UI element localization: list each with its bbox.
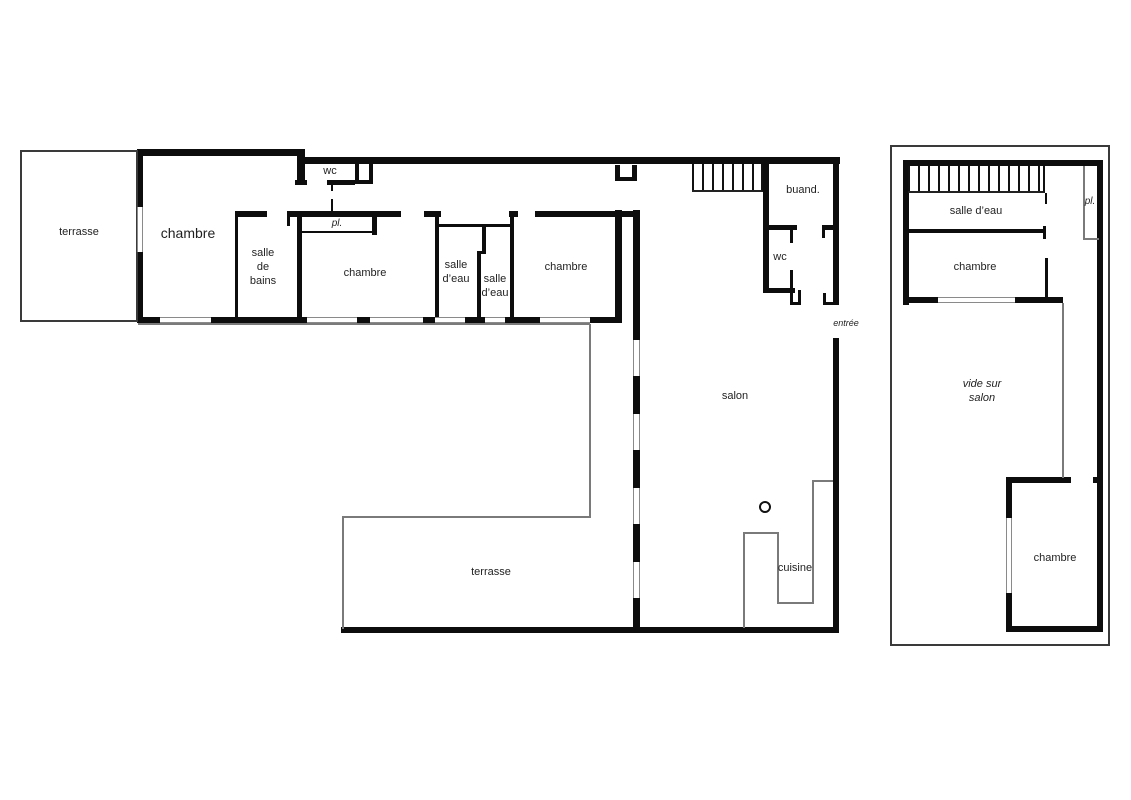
- label-buanderie: buand.: [786, 183, 820, 197]
- window-wing-south-2: [307, 317, 357, 323]
- label-salle-d-eau-etage: salle d’eau: [950, 204, 1003, 218]
- label-cuisine: cuisine: [778, 561, 812, 575]
- sdb-top-wall: [235, 211, 267, 217]
- window-wing-south-3: [370, 317, 423, 323]
- label-salle-d-eau-1: salle d’eau: [443, 258, 470, 286]
- label-chambre-1: chambre: [161, 226, 215, 240]
- label-terrasse-left: terrasse: [59, 225, 99, 239]
- label-terrasse-main: terrasse: [471, 565, 511, 579]
- duct-box-bottom: [615, 177, 637, 181]
- sde1-left-wall: [435, 217, 439, 317]
- label-salon: salon: [722, 389, 748, 403]
- salon-west-wall-top: [633, 210, 640, 340]
- sde-header-line: [437, 224, 512, 227]
- label-wc-2: wc: [773, 250, 786, 264]
- buand-door-jamb: [822, 230, 825, 238]
- label-pl-etage: pl.: [1085, 195, 1096, 209]
- south-wall-main: [341, 627, 839, 633]
- wc2-jamb-bottom: [790, 302, 801, 305]
- window-wing-south-4: [435, 317, 465, 323]
- kitchen-counter-h1: [743, 532, 779, 534]
- window-salon-west-4: [633, 562, 640, 598]
- wc-jamb-foot: [295, 180, 307, 185]
- wc2-door-tick-1: [790, 230, 793, 243]
- wc-door-tick-1: [331, 185, 333, 191]
- window-wing-south-5: [485, 317, 505, 323]
- wing-top-wall: [137, 149, 305, 156]
- corridor-south-wall-1: [287, 211, 401, 217]
- stairs-ground-floor-icon: [692, 164, 763, 192]
- east-wall-lower: [833, 338, 839, 633]
- window-salon-west-2: [633, 414, 640, 450]
- kitchen-counter-v1: [743, 532, 745, 628]
- corridor-south-wall-4: [535, 211, 640, 217]
- label-chambre-etage-2: chambre: [1034, 551, 1077, 565]
- window-chambre1-west: [137, 207, 143, 252]
- sde-divider-lower: [477, 252, 481, 317]
- wc2-door-tick-2: [790, 270, 793, 288]
- kitchen-counter-v3: [812, 480, 814, 604]
- sdb-right-wall: [297, 211, 302, 317]
- sdb-left-wall: [235, 217, 238, 317]
- salon-west-wall-2: [633, 376, 640, 414]
- sdb-door-jamb: [287, 211, 290, 226]
- wc-box-bottom: [355, 180, 373, 184]
- pl-right-wall: [372, 211, 377, 235]
- salon-column-icon: [759, 501, 771, 513]
- pl-bottom-line: [300, 231, 377, 233]
- window-salon-west-1: [633, 340, 640, 376]
- label-salle-d-eau-2: salle d’eau: [482, 272, 509, 300]
- window-wing-south-6: [540, 317, 590, 323]
- label-chambre-2: chambre: [344, 266, 387, 280]
- window-wing-south-1: [160, 317, 211, 323]
- label-pl-corridor: pl.: [332, 217, 343, 231]
- terrace-west-edge: [342, 516, 344, 629]
- label-salle-de-bains: salle de bains: [250, 246, 276, 288]
- wing-east-wall: [615, 210, 622, 323]
- salon-west-wall-3: [633, 450, 640, 488]
- label-chambre-3: chambre: [545, 260, 588, 274]
- stairs-upper-floor-icon: [908, 166, 1045, 193]
- facade-sill-line: [138, 323, 590, 325]
- label-wc-corridor: wc: [323, 164, 336, 178]
- window-etage-chambre1: [938, 297, 1015, 303]
- window-salon-west-3: [633, 488, 640, 524]
- corridor-top-wall: [300, 157, 840, 164]
- terrace-step-edge: [342, 516, 591, 518]
- east-wall-upper: [833, 157, 839, 305]
- label-vide-sur-salon: vide sur salon: [963, 377, 1002, 405]
- salon-west-wall-4: [633, 524, 640, 562]
- window-etage-chambre2: [1006, 518, 1012, 593]
- entree-jamb-v: [823, 293, 826, 305]
- kitchen-counter-h2: [777, 602, 814, 604]
- kitchen-counter-h3: [812, 480, 833, 482]
- label-chambre-etage-1: chambre: [954, 260, 997, 274]
- sde-divider-upper: [482, 224, 486, 253]
- terrace-east-edge: [589, 324, 591, 517]
- label-entree: entrée: [833, 316, 859, 330]
- chambre3-left-wall: [510, 211, 514, 317]
- floor-plan-canvas: terrassechambresalle de bainswcpl.chambr…: [0, 0, 1131, 800]
